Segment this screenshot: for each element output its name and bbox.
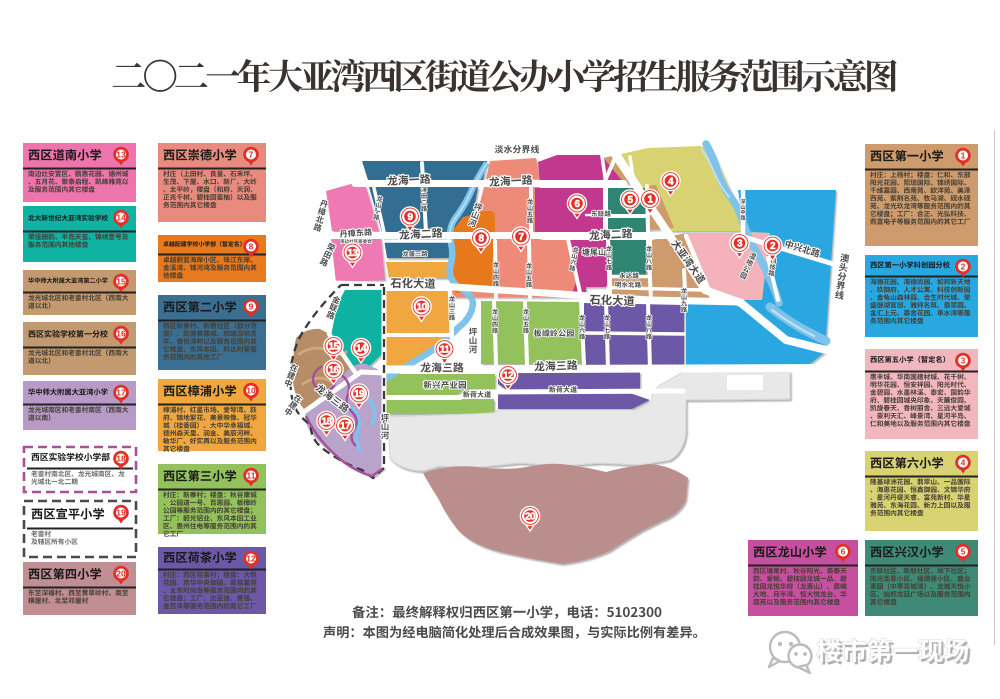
svg-text:7: 7: [249, 150, 254, 160]
svg-text:14: 14: [356, 344, 367, 355]
svg-text:4: 4: [961, 458, 966, 468]
svg-text:14: 14: [116, 213, 126, 223]
svg-text:12: 12: [246, 554, 256, 564]
svg-text:16: 16: [328, 365, 339, 376]
svg-text:19: 19: [116, 508, 126, 518]
svg-text:9: 9: [249, 302, 254, 312]
svg-text:13: 13: [347, 248, 358, 259]
svg-text:19: 19: [354, 389, 365, 400]
svg-text:10: 10: [246, 386, 256, 396]
svg-text:6: 6: [841, 547, 846, 557]
svg-text:11: 11: [247, 471, 256, 481]
svg-text:16: 16: [116, 329, 126, 339]
svg-text:20: 20: [116, 569, 126, 579]
svg-text:11: 11: [440, 345, 451, 356]
svg-text:12: 12: [503, 371, 514, 382]
svg-text:17: 17: [116, 388, 126, 398]
svg-text:17: 17: [340, 421, 351, 432]
svg-text:18: 18: [116, 454, 126, 464]
svg-text:15: 15: [328, 342, 339, 353]
svg-text:13: 13: [116, 150, 126, 160]
svg-text:3: 3: [961, 356, 966, 366]
svg-text:5: 5: [961, 547, 966, 557]
svg-text:10: 10: [416, 302, 427, 313]
svg-text:15: 15: [116, 277, 126, 287]
svg-text:8: 8: [249, 242, 254, 252]
svg-text:2: 2: [961, 262, 966, 272]
svg-text:18: 18: [321, 417, 332, 428]
svg-text:1: 1: [961, 151, 966, 161]
svg-text:20: 20: [525, 512, 536, 523]
